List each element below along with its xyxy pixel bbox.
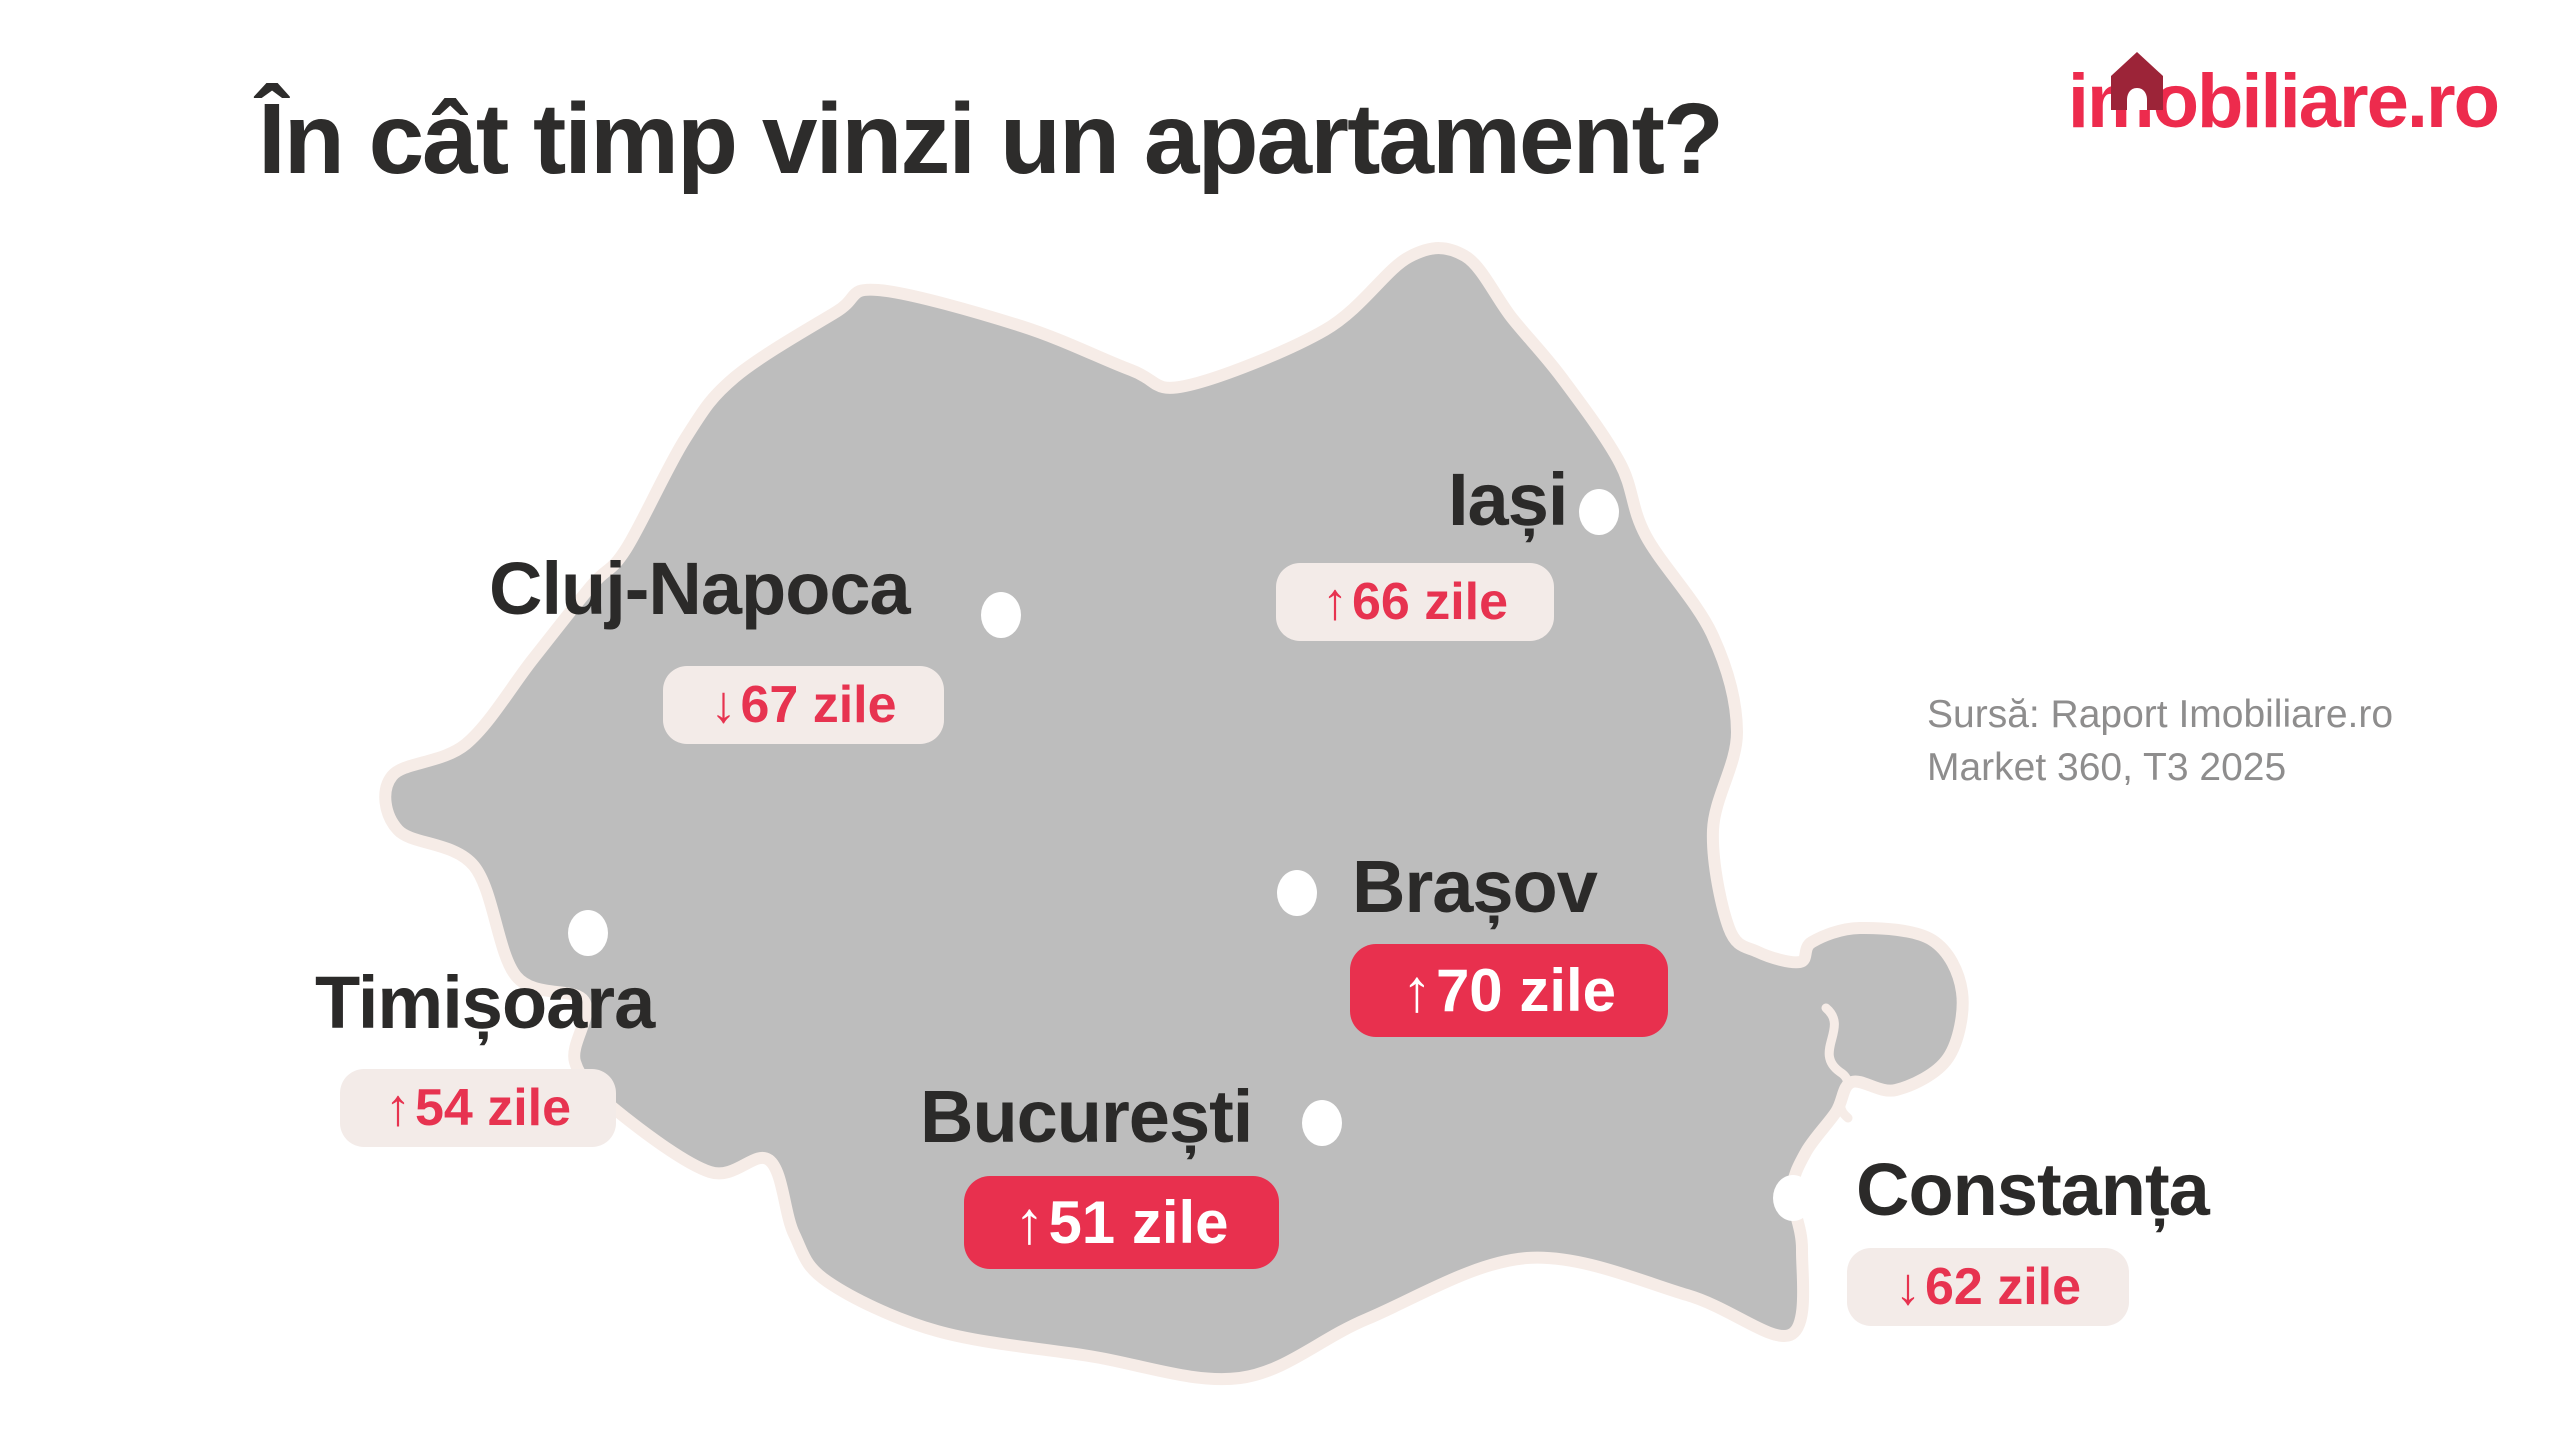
city-marker-iasi: [1579, 489, 1619, 535]
trend-down-arrow-icon: ↓: [710, 679, 736, 731]
trend-up-arrow-icon: ↑: [1322, 576, 1348, 628]
city-marker-brasov: [1277, 870, 1317, 916]
city-badge-cluj-napoca: ↓ 67 zile: [663, 666, 944, 744]
city-label-iasi: Iași: [1448, 463, 1567, 537]
badge-days-label: 67 zile: [740, 675, 896, 735]
city-badge-iasi: ↑ 66 zile: [1276, 563, 1554, 641]
source-line-2: Market 360, T3 2025: [1927, 741, 2393, 794]
house-icon: [2111, 50, 2163, 110]
brand-logo: im obiliare.ro: [2068, 58, 2498, 144]
city-badge-timisoara: ↑ 54 zile: [340, 1069, 616, 1147]
logo-text-end: obiliare.ro: [2153, 58, 2498, 145]
badge-days-label: 70 zile: [1436, 956, 1616, 1025]
trend-up-arrow-icon: ↑: [385, 1082, 411, 1134]
city-label-bucuresti: București: [920, 1080, 1252, 1154]
city-marker-timisoara: [568, 910, 608, 956]
badge-days-label: 54 zile: [415, 1078, 571, 1138]
logo-text-start: i: [2068, 58, 2087, 145]
trend-up-arrow-icon: ↑: [1014, 1193, 1044, 1253]
source-line-1: Sursă: Raport Imobiliare.ro: [1927, 688, 2393, 741]
city-label-timisoara: Timișoara: [315, 966, 654, 1040]
city-label-cluj-napoca: Cluj-Napoca: [489, 552, 910, 626]
city-badge-brasov: ↑ 70 zile: [1350, 944, 1668, 1037]
badge-days-label: 66 zile: [1352, 572, 1508, 632]
trend-up-arrow-icon: ↑: [1402, 961, 1432, 1021]
city-label-brasov: Brașov: [1352, 850, 1597, 924]
trend-down-arrow-icon: ↓: [1895, 1261, 1921, 1313]
badge-days-label: 51 zile: [1048, 1188, 1228, 1257]
city-marker-bucuresti: [1302, 1100, 1342, 1146]
city-label-constanta: Constanța: [1856, 1153, 2209, 1227]
city-marker-constanta: [1773, 1175, 1813, 1221]
source-note: Sursă: Raport Imobiliare.ro Market 360, …: [1927, 688, 2393, 794]
badge-days-label: 62 zile: [1925, 1257, 2081, 1317]
page-title: În cât timp vinzi un apartament?: [258, 84, 1722, 194]
city-marker-cluj-napoca: [981, 592, 1021, 638]
city-badge-constanta: ↓ 62 zile: [1847, 1248, 2129, 1326]
city-badge-bucuresti: ↑ 51 zile: [964, 1176, 1279, 1269]
